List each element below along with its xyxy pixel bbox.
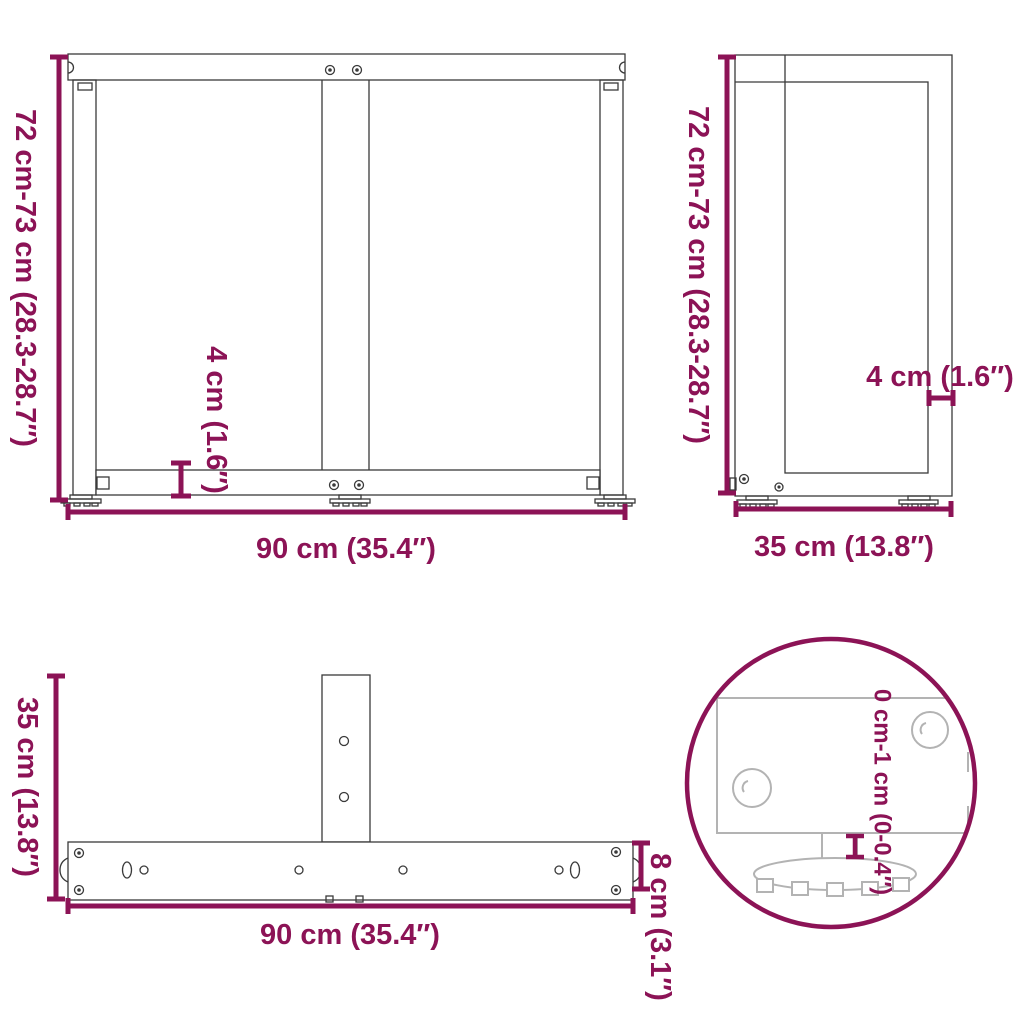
bottom-rail: [96, 470, 600, 495]
top-view: 35 cm (13.8″) 90 cm (35.4″) 8 cm (3.1″): [11, 675, 676, 1001]
side-height-label: 72 cm-73 cm (28.3-28.7″): [682, 106, 714, 444]
top-bar-height-label: 8 cm (3.1″): [644, 853, 676, 1001]
clip-tab: [78, 83, 92, 90]
side-thickness-label: 4 cm (1.6″): [866, 361, 1014, 393]
dimension-diagram: 72 cm-73 cm (28.3-28.7″) 90 cm (35.4″) 4…: [0, 0, 1024, 1024]
side-depth-label: 35 cm (13.8″): [754, 531, 934, 563]
mounting-plate: [322, 675, 370, 842]
front-height-label: 72 cm-73 cm (28.3-28.7″): [9, 109, 41, 447]
adjustable-foot: [330, 495, 370, 506]
adjustable-foot: [737, 496, 777, 507]
foot-bar: [68, 842, 633, 900]
clip-tab: [604, 83, 618, 90]
adjustable-foot: [899, 496, 938, 507]
adjustable-foot: [595, 495, 635, 506]
side-height-dimension: [718, 57, 736, 493]
foot-detail-circle: 0 cm-1 cm (0-0.4″): [687, 639, 1000, 927]
top-rail: [68, 54, 625, 80]
front-view: 72 cm-73 cm (28.3-28.7″) 90 cm (35.4″) 4…: [9, 54, 635, 565]
front-width-label: 90 cm (35.4″): [256, 533, 436, 565]
top-depth-dimension: [47, 676, 65, 899]
screw-head: [912, 712, 948, 748]
side-view: 72 cm-73 cm (28.3-28.7″) 35 cm (13.8″) 4…: [682, 55, 1014, 563]
top-width-label: 90 cm (35.4″): [260, 919, 440, 951]
front-height-dimension: [50, 57, 68, 500]
left-post: [73, 80, 96, 495]
side-outline: [735, 55, 952, 496]
front-thickness-label: 4 cm (1.6″): [200, 346, 232, 494]
screw-head: [733, 769, 771, 807]
dimension-diagram-svg: 72 cm-73 cm (28.3-28.7″) 90 cm (35.4″) 4…: [0, 0, 1024, 1024]
foot-adjust-label: 0 cm-1 cm (0-0.4″): [869, 689, 896, 895]
foot-end-bump: [60, 858, 68, 882]
foot-detail-content: 0 cm-1 cm (0-0.4″): [717, 689, 1000, 896]
top-depth-label: 35 cm (13.8″): [11, 697, 43, 877]
right-post: [600, 80, 623, 495]
